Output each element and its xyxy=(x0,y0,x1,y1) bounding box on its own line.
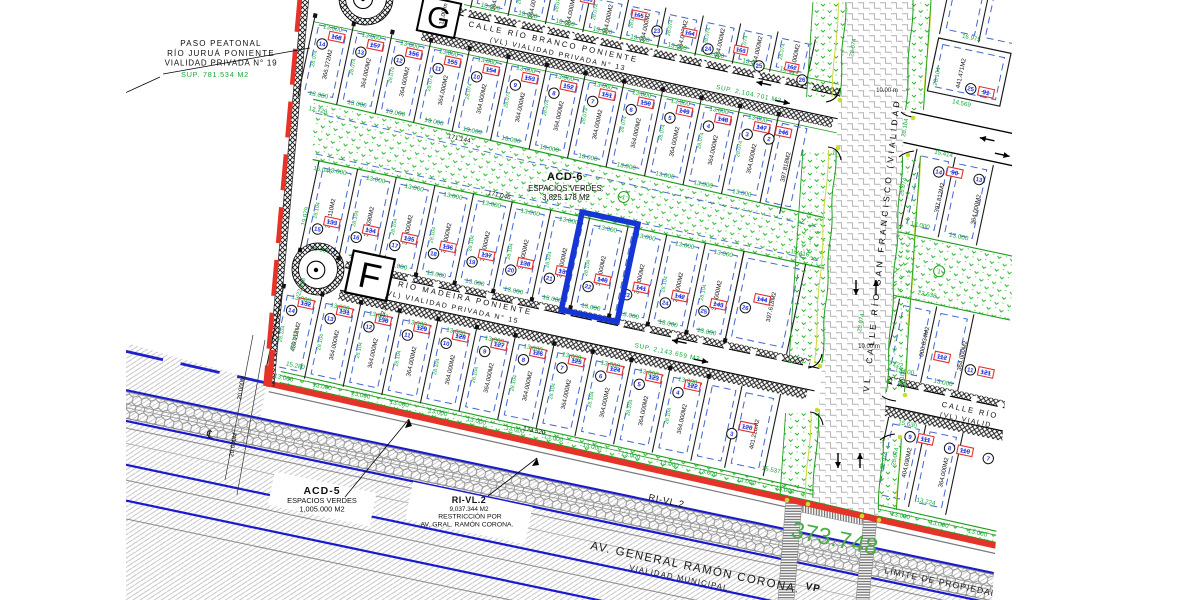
svg-text:RÍO JURUÁ PONIENTE: RÍO JURUÁ PONIENTE xyxy=(167,49,275,58)
svg-text:10.00 m: 10.00 m xyxy=(876,88,898,94)
svg-text:24: 24 xyxy=(705,47,712,53)
svg-text:PASO PEATONAL: PASO PEATONAL xyxy=(180,39,261,48)
svg-text:VIALIDAD PRIVADA N° 19: VIALIDAD PRIVADA N° 19 xyxy=(165,59,278,68)
svg-text:SUP. 781.534 M2: SUP. 781.534 M2 xyxy=(181,70,249,79)
svg-text:AV. GRAL. RAMÓN CORONA.: AV. GRAL. RAMÓN CORONA. xyxy=(421,520,514,529)
svg-text:ESPACIOS VERDES.: ESPACIOS VERDES. xyxy=(528,184,604,193)
svg-text:RI-VL.2: RI-VL.2 xyxy=(452,495,487,505)
svg-text:25: 25 xyxy=(756,64,763,70)
svg-text:23: 23 xyxy=(654,29,661,35)
svg-text:26: 26 xyxy=(799,78,806,84)
svg-text:1,005.000 M2: 1,005.000 M2 xyxy=(299,505,344,514)
svg-text:ACD-6: ACD-6 xyxy=(547,171,583,183)
svg-text:9,037.344 M2: 9,037.344 M2 xyxy=(449,506,489,513)
svg-text:RESTRICCIÓN POR: RESTRICCIÓN POR xyxy=(438,512,502,521)
svg-text:3,825.178 M2: 3,825.178 M2 xyxy=(542,193,590,202)
svg-text:10.00 m: 10.00 m xyxy=(858,344,880,350)
